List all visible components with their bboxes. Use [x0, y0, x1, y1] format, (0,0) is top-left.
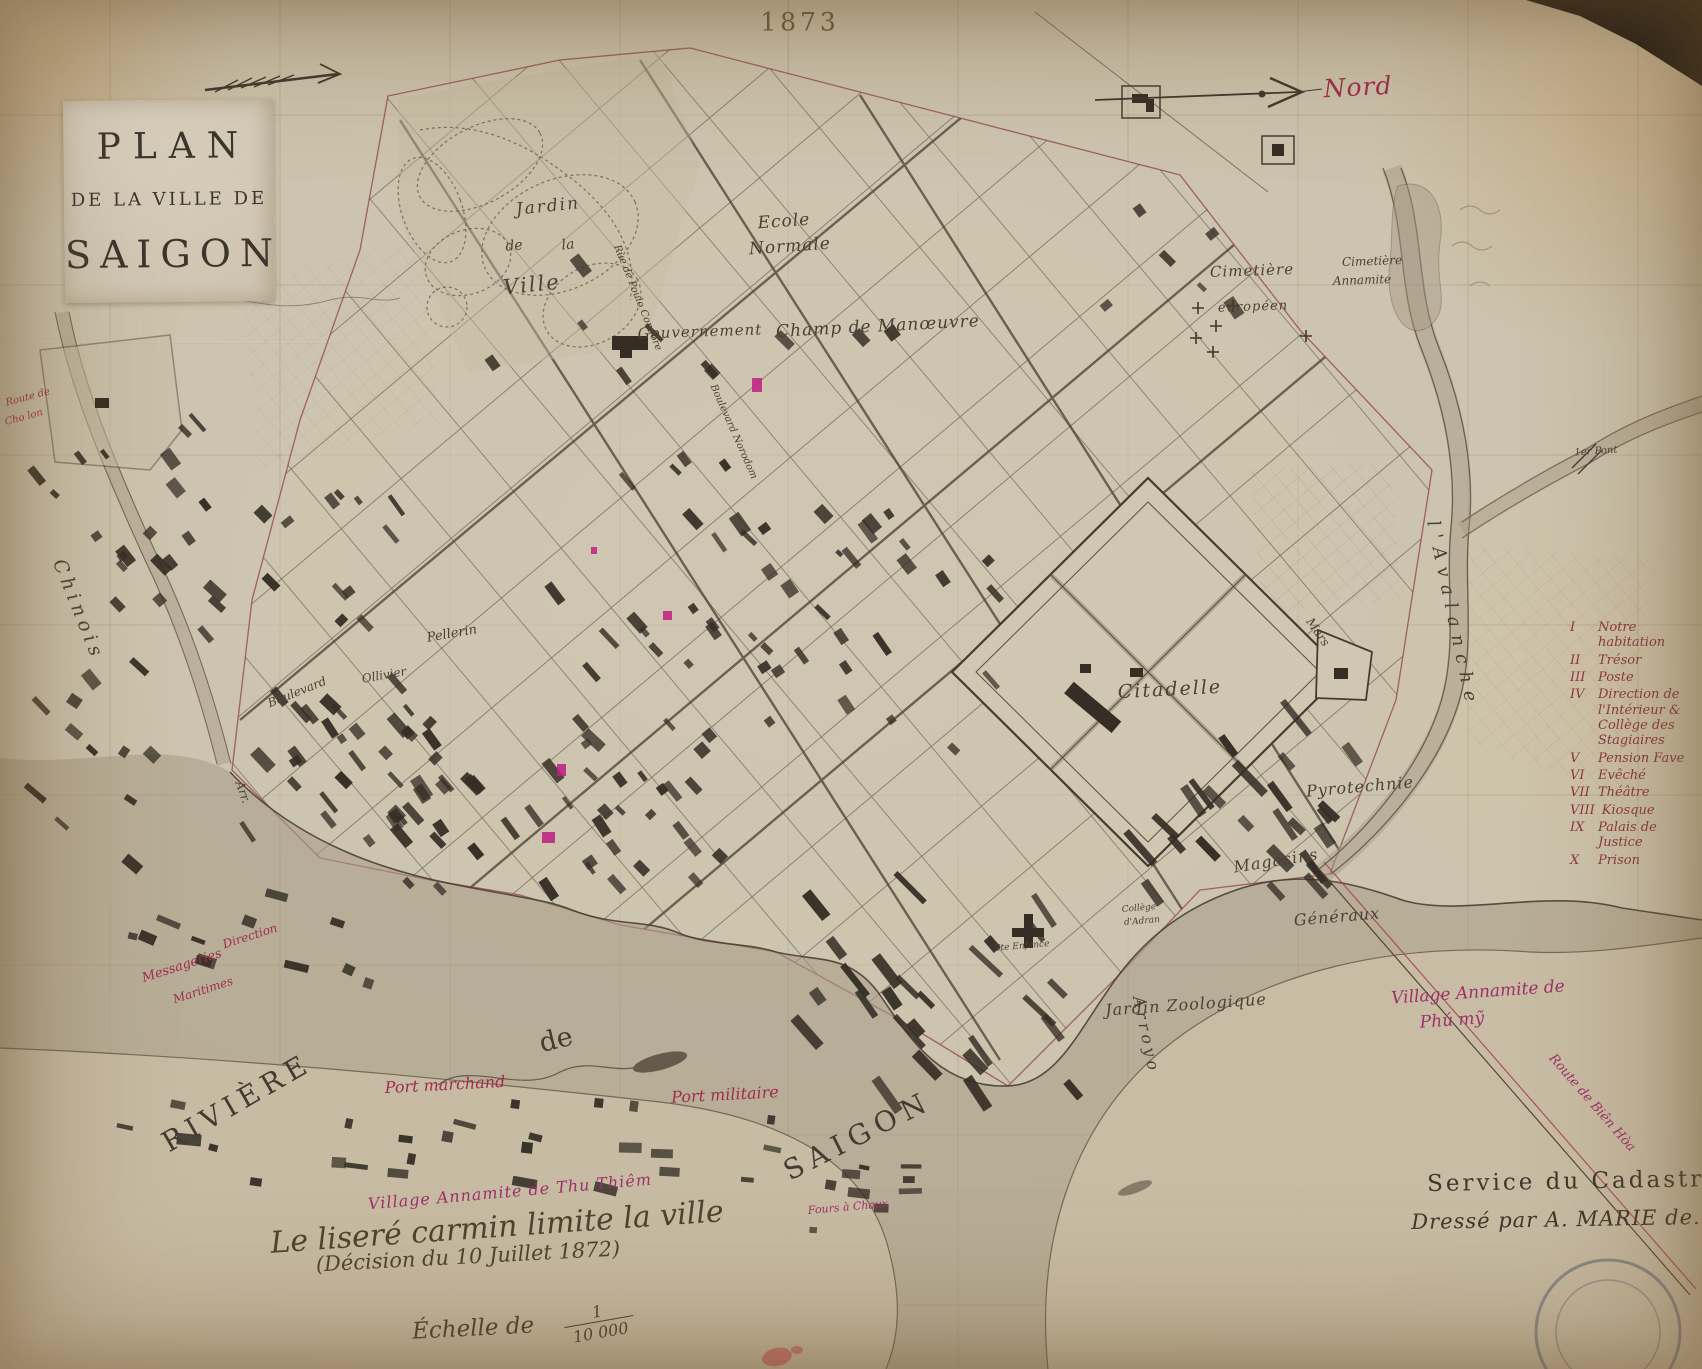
- legend-label: Kiosque: [1602, 803, 1702, 818]
- title-line-saigon: SAIGON: [57, 231, 283, 277]
- legend-numeral: X: [1570, 853, 1591, 868]
- legend-item-VI: VIEvêché: [1570, 768, 1702, 783]
- legend-label: Palais de Justice: [1598, 820, 1702, 851]
- legend-label: Théâtre: [1598, 785, 1702, 800]
- legend-numeral: II: [1570, 653, 1591, 668]
- legend-label: Pension Fave: [1598, 751, 1702, 766]
- avalanche-upper-south-edge: [1462, 412, 1702, 538]
- legend-label: Direction de l'Intérieur & Collège des S…: [1598, 687, 1702, 748]
- legend-label: Trésor: [1598, 653, 1702, 668]
- paddy-hatch-ne: [1250, 462, 1400, 615]
- scale-numerator: 1: [590, 1301, 603, 1321]
- legend-label: Notre habitation: [1598, 620, 1702, 651]
- legend-item-IV: IVDirection de l'Intérieur & Collège des…: [1570, 687, 1702, 748]
- legend-item-V: VPension Fave: [1570, 751, 1702, 766]
- legend: INotre habitationIITrésorIIIPosteIVDirec…: [1570, 620, 1702, 870]
- legend-item-VIII: VIIIKiosque: [1570, 803, 1702, 818]
- legend-item-X: XPrison: [1570, 853, 1702, 868]
- legend-numeral: IV: [1570, 687, 1591, 748]
- legend-label: Prison: [1598, 853, 1702, 868]
- title-block: PLAN DE LA VILLE DE SAIGON: [63, 99, 275, 303]
- feather-arrow-icon: [205, 64, 340, 92]
- legend-numeral: VI: [1570, 768, 1591, 783]
- legend-numeral: VII: [1570, 785, 1591, 800]
- legend-numeral: I: [1570, 620, 1591, 651]
- map-photo: PLAN DE LA VILLE DE SAIGON 1873NordJardi…: [0, 0, 1702, 1369]
- legend-numeral: IX: [1570, 820, 1591, 851]
- legend-numeral: V: [1570, 751, 1591, 766]
- scale-label: Échelle de: [411, 1312, 534, 1344]
- legend-label: Evêché: [1598, 768, 1702, 783]
- scale-fraction: 1 10 000: [561, 1296, 637, 1348]
- title-line-ville: DE LA VILLE DE: [71, 188, 268, 211]
- torn-corner: [1526, 0, 1702, 86]
- legend-numeral: VIII: [1570, 803, 1595, 818]
- legend-numeral: III: [1570, 670, 1591, 685]
- title-line-plan: PLAN: [86, 125, 250, 168]
- marsh: [1389, 184, 1500, 331]
- old-fort: [40, 335, 182, 470]
- legend-item-II: IITrésor: [1570, 653, 1702, 668]
- legend-item-VII: VIIThéâtre: [1570, 785, 1702, 800]
- legend-item-IX: IXPalais de Justice: [1570, 820, 1702, 851]
- north-arrow: [1095, 78, 1322, 107]
- legend-item-I: INotre habitation: [1570, 620, 1702, 651]
- legend-item-III: IIIPoste: [1570, 670, 1702, 685]
- legend-label: Poste: [1598, 670, 1702, 685]
